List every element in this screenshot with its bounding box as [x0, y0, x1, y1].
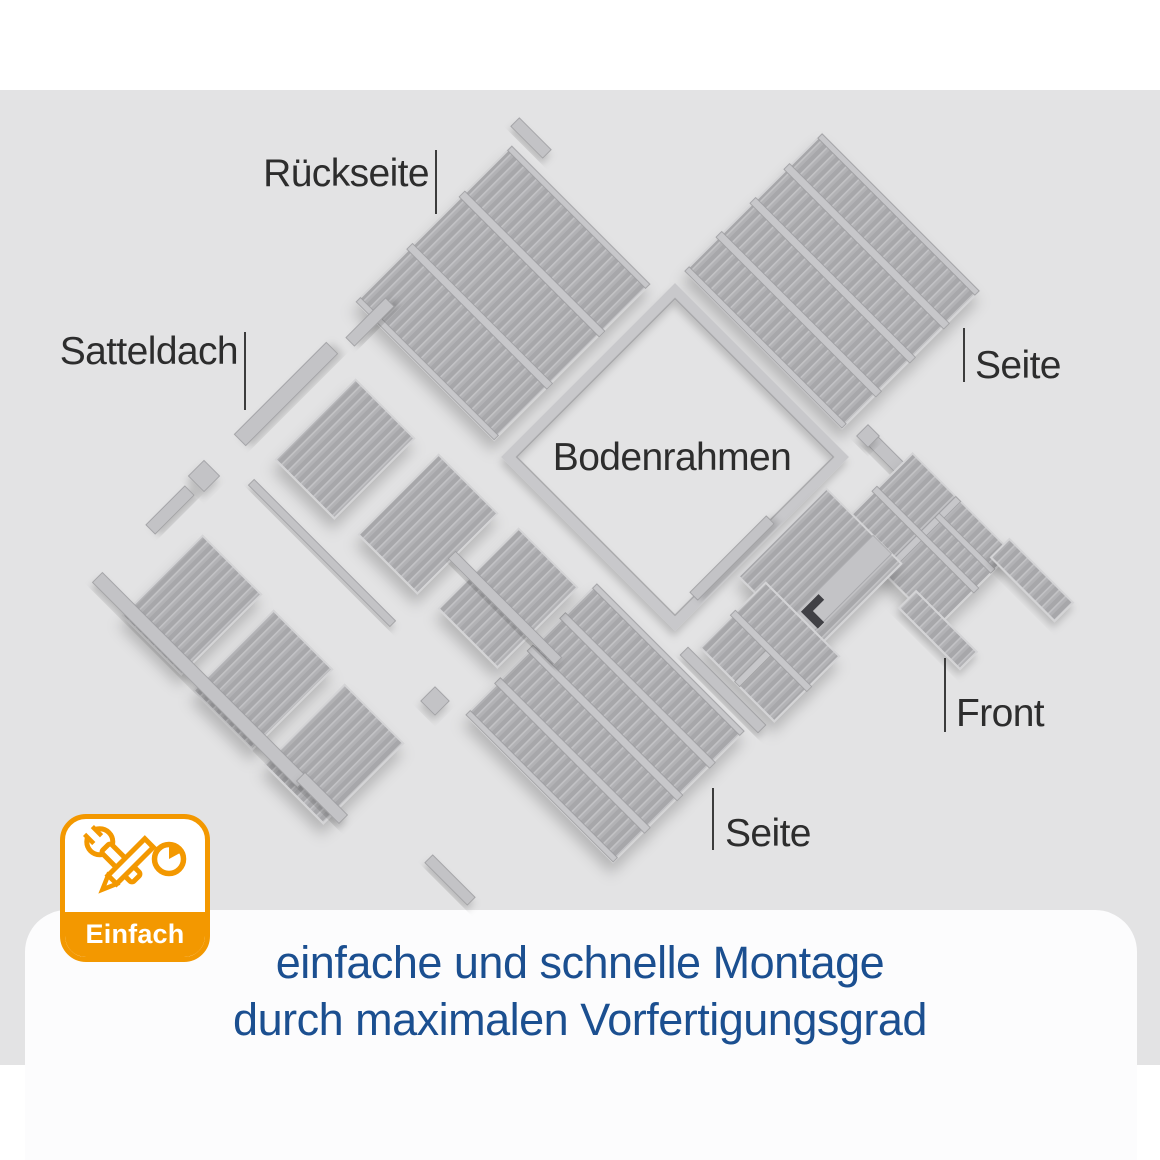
corner-cap	[188, 460, 219, 491]
seite-bottom-pointer-line	[712, 788, 714, 850]
label-satteldach: Satteldach	[60, 330, 238, 374]
seite-bottom-trim	[425, 855, 475, 905]
door-jamb-panel	[991, 539, 1073, 621]
caption-text: einfache und schnelle Montage durch maxi…	[0, 934, 1160, 1048]
roof-panel	[276, 380, 415, 519]
product-infographic: Rückseite Satteldach Seite Bodenrahmen F…	[0, 0, 1160, 1160]
label-seite-right: Seite	[975, 344, 1061, 388]
seite-right-pointer-line	[963, 328, 965, 382]
label-seite-bottom: Seite	[725, 812, 811, 856]
corner-cap	[421, 687, 449, 715]
tools-time-icon	[79, 823, 191, 909]
label-front: Front	[956, 692, 1044, 736]
caption-line2: durch maximalen Vorfertigungsgrad	[0, 991, 1160, 1048]
caption-line1: einfache und schnelle Montage	[0, 934, 1160, 991]
roof-beam	[146, 486, 194, 534]
front-pointer-line	[944, 658, 946, 732]
seite-right-panel	[684, 133, 981, 430]
rueckseite-pointer-line	[435, 150, 437, 214]
badge-icon-area	[65, 819, 205, 912]
label-bodenrahmen: Bodenrahmen	[553, 436, 791, 480]
label-rueckseite: Rückseite	[263, 152, 429, 196]
clock-pie-icon	[155, 844, 184, 873]
satteldach-pointer-line	[244, 332, 246, 410]
